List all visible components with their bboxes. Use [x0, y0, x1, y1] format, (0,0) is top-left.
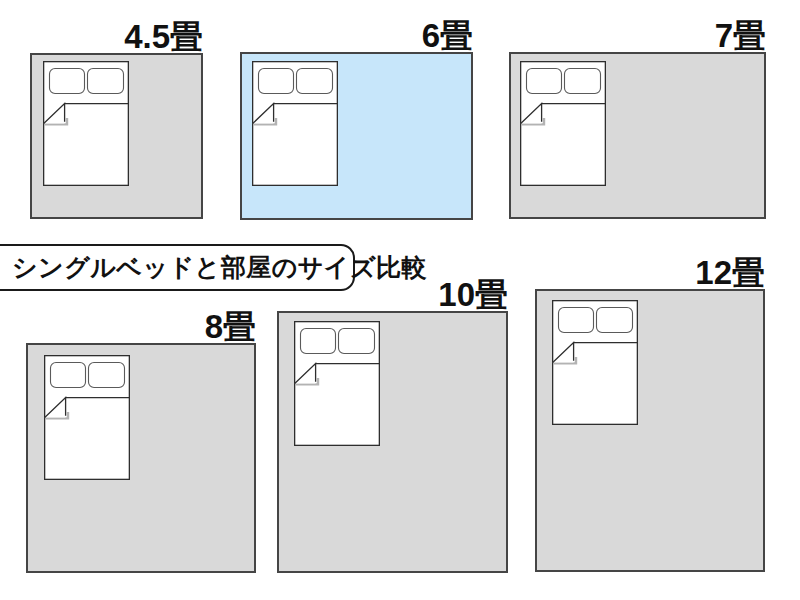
- bed-pillow-right: [339, 329, 375, 354]
- room-10: 10畳: [277, 311, 508, 573]
- room-12: 12畳: [535, 289, 765, 572]
- room-size-comparison-diagram: シングルベッドと部屋のサイズ比較 4.5畳 6畳 7畳: [0, 0, 800, 600]
- bed-pillow-left: [301, 329, 336, 354]
- single-bed-icon: [252, 61, 338, 186]
- bed-pillow-right: [89, 363, 125, 388]
- room-size-label: 6畳: [422, 19, 473, 54]
- room-size-label: 8畳: [205, 310, 256, 345]
- single-bed-icon: [520, 61, 606, 186]
- room-4-5: 4.5畳: [30, 53, 203, 219]
- single-bed-icon: [44, 355, 130, 480]
- bed-pillow-right: [597, 308, 633, 333]
- room-7: 7畳: [509, 52, 766, 219]
- room-8: 8畳: [26, 343, 256, 573]
- room-size-label: 4.5畳: [124, 20, 203, 55]
- bed-pillow-right: [88, 69, 124, 94]
- diagram-title-box: シングルベッドと部屋のサイズ比較: [0, 244, 355, 291]
- bed-pillow-right: [565, 69, 601, 94]
- room-6: 6畳: [240, 52, 473, 220]
- room-size-label: 7畳: [715, 19, 766, 54]
- single-bed-icon: [552, 300, 638, 425]
- room-size-label: 12畳: [695, 256, 765, 291]
- bed-pillow-left: [527, 69, 562, 94]
- single-bed-icon: [294, 321, 380, 446]
- single-bed-icon: [43, 61, 129, 186]
- bed-pillow-left: [559, 308, 594, 333]
- bed-pillow-left: [259, 69, 294, 94]
- bed-pillow-left: [50, 69, 85, 94]
- bed-pillow-right: [297, 69, 333, 94]
- room-size-label: 10畳: [438, 278, 508, 313]
- diagram-title: シングルベッドと部屋のサイズ比較: [12, 251, 427, 284]
- bed-pillow-left: [51, 363, 86, 388]
